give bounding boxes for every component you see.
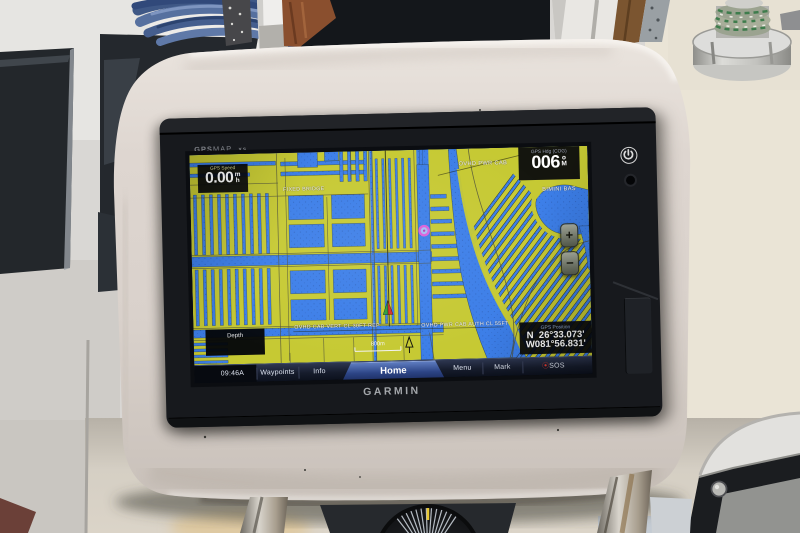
svg-text:BIMINI BAS: BIMINI BAS [542, 186, 576, 193]
svg-text:800m: 800m [371, 341, 385, 347]
svg-text:OVHD PWR CAB: OVHD PWR CAB [459, 160, 508, 167]
svg-text:FIXED BRIDGE: FIXED BRIDGE [283, 186, 325, 193]
